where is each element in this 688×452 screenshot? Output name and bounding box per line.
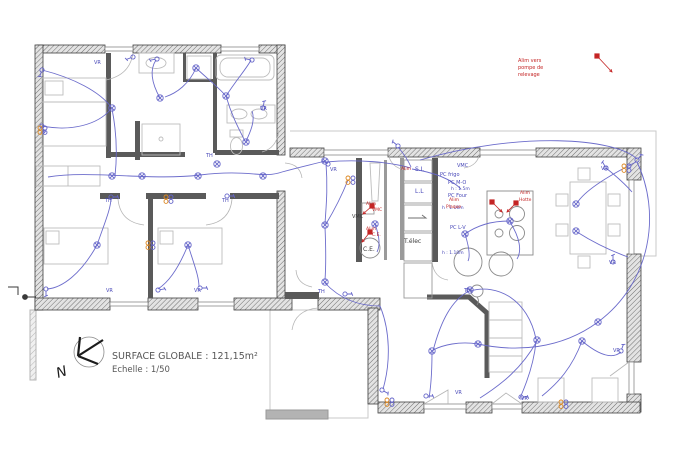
north-label: N xyxy=(54,363,69,382)
switch-symbol xyxy=(343,292,353,296)
supply-arrow-symbol xyxy=(595,54,612,72)
ceiling-light-symbol xyxy=(579,338,585,344)
ceiling-light-symbol xyxy=(243,139,249,145)
plan-label: VMC xyxy=(352,214,364,220)
armchair xyxy=(538,378,564,402)
plan-label: C.E. xyxy=(372,232,381,238)
plan-label: VR xyxy=(613,348,620,354)
plan-label: Alim xyxy=(449,197,459,203)
floor-plan-page: Alim verspompe derelevageVRVRTHTHTHVRVRV… xyxy=(0,0,688,452)
garden-wall xyxy=(30,310,36,380)
plan-label: TH xyxy=(221,198,229,204)
porch-step xyxy=(266,410,328,419)
bathroom-vanity xyxy=(139,53,174,73)
plan-label: TH xyxy=(104,198,112,204)
plan-label: Hotte xyxy=(519,197,532,203)
ceiling-light-symbol xyxy=(94,242,100,248)
electrical-wiring xyxy=(42,60,650,398)
ceiling-light-symbol xyxy=(195,173,201,179)
plan-label: VR xyxy=(330,167,337,173)
plan-label: VR xyxy=(106,288,113,294)
ceiling-light-symbols xyxy=(94,65,601,354)
plan-label: TH xyxy=(205,153,213,159)
plan-label: PC M-O xyxy=(448,180,466,186)
switch-symbols xyxy=(37,54,643,399)
plan-label: Plaque xyxy=(446,204,461,210)
ceiling-light-symbol xyxy=(573,228,579,234)
switch-symbol xyxy=(125,54,136,61)
plan-label: VR xyxy=(455,390,462,396)
switch-symbol xyxy=(44,287,48,297)
ceiling-light-symbol xyxy=(595,319,601,325)
shelf-unit xyxy=(489,302,522,372)
title-block: SURFACE GLOBALE : 121,15m² Echelle : 1/5… xyxy=(112,351,258,375)
ceiling-light-symbol xyxy=(260,173,266,179)
ceiling-light-symbol xyxy=(534,337,540,343)
plan-label: TH xyxy=(463,288,471,294)
shower xyxy=(142,124,180,155)
plan-label: Alim xyxy=(520,190,530,196)
plan-label: PC L-V xyxy=(450,225,466,231)
ceiling-light-symbol xyxy=(223,93,229,99)
plan-label: VMC xyxy=(457,163,469,169)
plan-label: VR xyxy=(521,396,528,402)
plan-label: Alim xyxy=(366,201,376,207)
partition-walls xyxy=(100,53,438,299)
plan-label: VMC xyxy=(372,207,382,213)
plan-label: VR xyxy=(194,288,201,294)
ceiling-light-symbol xyxy=(185,242,191,248)
plan-label: VR xyxy=(601,166,608,172)
utility-fixture xyxy=(370,163,380,201)
plan-label: L.L xyxy=(415,188,424,195)
kitchen-cabinet xyxy=(404,263,432,298)
plan-label: Alim xyxy=(366,226,376,232)
switch-symbol xyxy=(244,57,254,63)
scale-label: Echelle : 1/50 xyxy=(112,365,170,375)
plan-label: VR xyxy=(609,260,616,266)
socket-symbol xyxy=(346,176,355,184)
plan-label: VR xyxy=(260,106,267,112)
ceiling-light-symbol xyxy=(109,173,115,179)
ceiling-light-symbol xyxy=(157,95,163,101)
floor-plan-drawing: Alim verspompe derelevageVRVRTHTHTHVRVRV… xyxy=(0,0,688,452)
surface-total-label: SURFACE GLOBALE : 121,15m² xyxy=(112,351,258,362)
plan-label: VR xyxy=(94,60,101,66)
plan-label: S.L xyxy=(415,166,425,173)
pillow xyxy=(45,81,63,95)
supply-arrow-symbol xyxy=(490,200,502,212)
plan-label: h : 1.5m xyxy=(451,186,470,192)
power-feed-symbol xyxy=(8,287,36,299)
plan-label: relevage xyxy=(518,72,540,78)
ceiling-light-symbol xyxy=(462,231,468,237)
armchair xyxy=(592,378,618,402)
plan-label: PC frigo xyxy=(440,172,460,178)
ceiling-light-symbol xyxy=(193,65,199,71)
ceiling-light-symbol xyxy=(214,161,220,167)
plan-label: C.E. xyxy=(363,246,375,253)
plan-label: Alim vers xyxy=(518,58,542,64)
ceiling-light-symbol xyxy=(573,201,579,207)
switch-symbol xyxy=(379,387,390,396)
plan-label: pompe de xyxy=(518,65,543,71)
switch-symbol xyxy=(391,139,401,149)
plan-label: h : 1.10m xyxy=(442,250,464,256)
plan-label: Alim xyxy=(401,166,411,172)
dining-table xyxy=(570,182,606,254)
bed-1 xyxy=(42,78,106,146)
bed-3 xyxy=(158,228,222,264)
north-compass: N xyxy=(54,337,104,382)
furniture xyxy=(36,53,620,402)
angled-feature-wall xyxy=(427,297,487,378)
plan-label: T.élec xyxy=(403,238,421,245)
porch-outline xyxy=(270,310,368,418)
plan-label: TH xyxy=(317,289,325,295)
